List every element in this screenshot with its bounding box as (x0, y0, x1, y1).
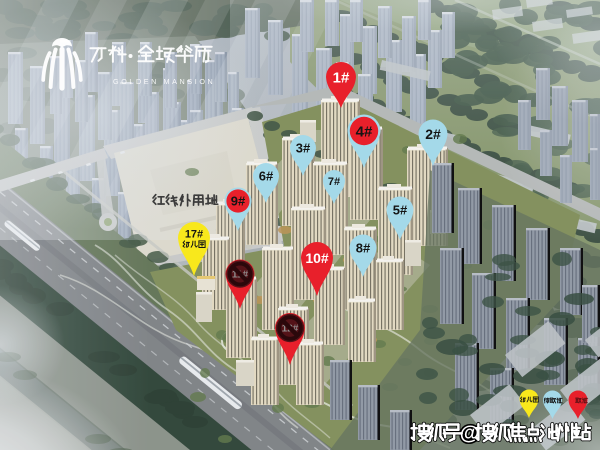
svg-text:17#: 17# (185, 229, 203, 241)
svg-text:1#: 1# (333, 69, 350, 86)
svg-text:6#: 6# (259, 169, 274, 184)
svg-text:7#: 7# (328, 176, 340, 188)
svg-text:9#: 9# (231, 194, 246, 209)
svg-text:10#: 10# (305, 250, 329, 266)
svg-text:@: @ (460, 423, 480, 445)
svg-text:4#: 4# (356, 123, 373, 140)
svg-text:3#: 3# (296, 141, 311, 156)
svg-text:5#: 5# (393, 203, 408, 218)
svg-text:8#: 8# (356, 241, 371, 256)
svg-text:2#: 2# (425, 126, 441, 142)
svg-text:GOLDEN MANSION: GOLDEN MANSION (113, 77, 215, 86)
